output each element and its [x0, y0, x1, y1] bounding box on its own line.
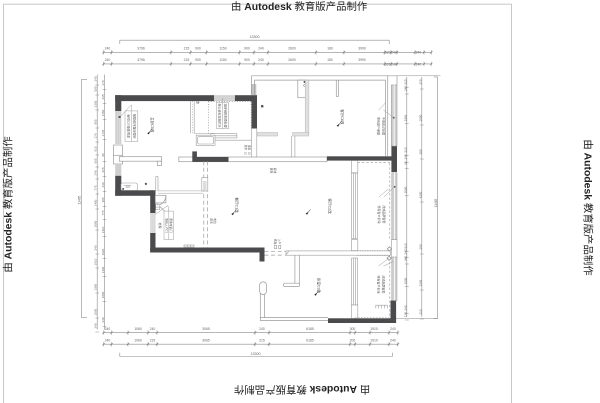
svg-text:440: 440: [403, 256, 407, 261]
svg-text:435: 435: [101, 94, 105, 99]
svg-text:1000: 1000: [403, 277, 407, 284]
svg-text:1800: 1800: [101, 291, 105, 298]
svg-text:1735: 1735: [101, 129, 105, 136]
svg-text:200: 200: [350, 339, 356, 343]
svg-text:成品: 成品: [274, 239, 278, 245]
svg-text:3990: 3990: [358, 58, 366, 62]
svg-text:440: 440: [101, 182, 105, 187]
svg-text:240: 240: [403, 305, 407, 310]
svg-text:290: 290: [418, 244, 422, 249]
svg-text:215: 215: [259, 339, 265, 343]
svg-text:1460: 1460: [101, 266, 105, 273]
svg-text:2600: 2600: [288, 58, 296, 62]
svg-text:240: 240: [391, 51, 397, 55]
svg-text:1910: 1910: [370, 327, 378, 331]
svg-text:1910: 1910: [370, 339, 378, 343]
svg-text:1460: 1460: [94, 199, 98, 206]
svg-text:3990: 3990: [358, 47, 366, 51]
svg-text:1900: 1900: [94, 283, 98, 290]
svg-text:处理: 处理: [158, 223, 163, 229]
svg-text:3796: 3796: [137, 47, 145, 51]
svg-text:170: 170: [403, 312, 407, 317]
svg-text:775: 775: [101, 210, 105, 215]
svg-text:240: 240: [259, 327, 265, 331]
svg-text:240: 240: [416, 62, 422, 66]
svg-text:240: 240: [105, 327, 111, 331]
svg-text:900: 900: [244, 58, 250, 62]
svg-text:13300: 13300: [251, 352, 261, 356]
svg-text:1150: 1150: [219, 47, 226, 51]
svg-text:2955: 2955: [403, 114, 407, 121]
svg-text:3065: 3065: [202, 327, 210, 331]
svg-text:900: 900: [195, 58, 201, 62]
svg-text:300: 300: [350, 327, 356, 331]
svg-text:210: 210: [418, 309, 422, 314]
svg-text:墙砖铺贴到顶处理: 墙砖铺贴到顶处理: [224, 103, 229, 127]
svg-text:240: 240: [391, 62, 397, 66]
svg-text:620: 620: [385, 62, 391, 66]
svg-text:240: 240: [105, 339, 111, 343]
svg-text:按公装标准做防水: 按公装标准做防水: [218, 103, 223, 127]
svg-text:3265: 3265: [418, 279, 422, 286]
svg-text:原有窗户拆除: 原有窗户拆除: [377, 205, 382, 223]
svg-text:原有窗户保留: 原有窗户保留: [377, 117, 382, 135]
svg-text:240: 240: [101, 317, 105, 322]
svg-text:240: 240: [390, 339, 396, 343]
svg-text:原有窗户拆除: 原有窗户拆除: [377, 275, 382, 293]
svg-text:3090: 3090: [403, 186, 407, 193]
svg-text:1410: 1410: [101, 226, 105, 233]
svg-text:520: 520: [403, 79, 407, 84]
svg-text:1150: 1150: [219, 58, 226, 62]
svg-text:6185: 6185: [306, 327, 314, 331]
svg-text:1000: 1000: [418, 114, 422, 121]
svg-text:665: 665: [94, 158, 98, 163]
svg-text:6185: 6185: [306, 339, 314, 343]
svg-text:240: 240: [390, 327, 396, 331]
svg-text:2600: 2600: [288, 47, 296, 51]
svg-text:墙体: 墙体: [273, 168, 277, 174]
svg-text:240: 240: [403, 86, 407, 91]
svg-text:11465: 11465: [78, 195, 82, 204]
svg-text:240: 240: [150, 327, 156, 331]
svg-text:240: 240: [258, 47, 264, 51]
svg-text:改水: 改水: [210, 218, 214, 224]
svg-text:240: 240: [94, 245, 98, 250]
svg-text:240: 240: [403, 154, 407, 159]
svg-text:240: 240: [105, 58, 111, 62]
svg-text:更换成品门: 更换成品门: [169, 218, 174, 233]
svg-text:615: 615: [101, 167, 105, 172]
svg-text:13300: 13300: [250, 35, 260, 39]
svg-text:240: 240: [403, 249, 407, 254]
svg-text:4200: 4200: [418, 191, 422, 198]
svg-text:180: 180: [327, 47, 333, 51]
svg-text:240: 240: [94, 170, 98, 175]
svg-text:215: 215: [184, 47, 190, 51]
svg-text:改成品飘窗套: 改成品飘窗套: [382, 275, 387, 293]
svg-text:3085: 3085: [94, 220, 98, 227]
svg-text:900: 900: [244, 47, 250, 51]
svg-text:215: 215: [184, 58, 190, 62]
svg-text:170: 170: [101, 80, 105, 85]
svg-text:775: 775: [94, 185, 98, 190]
svg-text:270: 270: [418, 79, 422, 84]
svg-text:510: 510: [403, 243, 407, 248]
svg-text:卧室C3改: 卧室C3改: [317, 278, 322, 294]
svg-text:1000: 1000: [94, 308, 98, 315]
svg-text:240: 240: [94, 323, 98, 328]
svg-text:入户: 入户: [278, 239, 282, 245]
svg-text:3065: 3065: [202, 339, 210, 343]
svg-text:改成品飘窗套: 改成品飘窗套: [382, 205, 387, 223]
svg-text:200: 200: [418, 149, 422, 154]
svg-text:11465: 11465: [434, 198, 438, 207]
svg-text:900: 900: [195, 47, 201, 51]
svg-text:170: 170: [94, 133, 98, 138]
svg-text:1010: 1010: [94, 258, 98, 265]
svg-text:615: 615: [94, 146, 98, 151]
svg-text:拆除: 拆除: [270, 168, 274, 174]
svg-text:240: 240: [416, 51, 422, 55]
svg-text:180: 180: [327, 58, 333, 62]
svg-text:电位: 电位: [248, 145, 252, 151]
svg-text:215: 215: [150, 339, 156, 343]
svg-text:贴壁纸饰面处理好: 贴壁纸饰面处理好: [133, 114, 138, 139]
svg-text:95: 95: [101, 153, 105, 157]
svg-text:240: 240: [94, 76, 98, 81]
svg-text:60: 60: [403, 161, 407, 165]
svg-text:新砌120墙体刷漆: 新砌120墙体刷漆: [126, 114, 131, 138]
svg-text:1060: 1060: [134, 339, 142, 343]
svg-text:1060: 1060: [134, 327, 142, 331]
svg-text:改水: 改水: [244, 145, 248, 151]
svg-text:620: 620: [385, 51, 391, 55]
svg-text:3796: 3796: [137, 58, 145, 62]
svg-text:1020: 1020: [101, 248, 105, 255]
svg-text:610: 610: [403, 147, 407, 152]
svg-text:240: 240: [105, 47, 111, 51]
svg-text:1150: 1150: [101, 109, 105, 116]
svg-text:客厅C2改: 客厅C2改: [327, 198, 332, 214]
svg-text:2305: 2305: [94, 100, 98, 107]
svg-text:原有入户门: 原有入户门: [164, 218, 169, 233]
svg-text:240: 240: [258, 58, 264, 62]
svg-text:不做改动处理: 不做改动处理: [382, 117, 387, 135]
svg-text:590: 590: [94, 86, 98, 91]
svg-text:电位: 电位: [213, 218, 217, 224]
svg-text:185: 185: [101, 197, 105, 202]
svg-text:905: 905: [94, 119, 98, 124]
